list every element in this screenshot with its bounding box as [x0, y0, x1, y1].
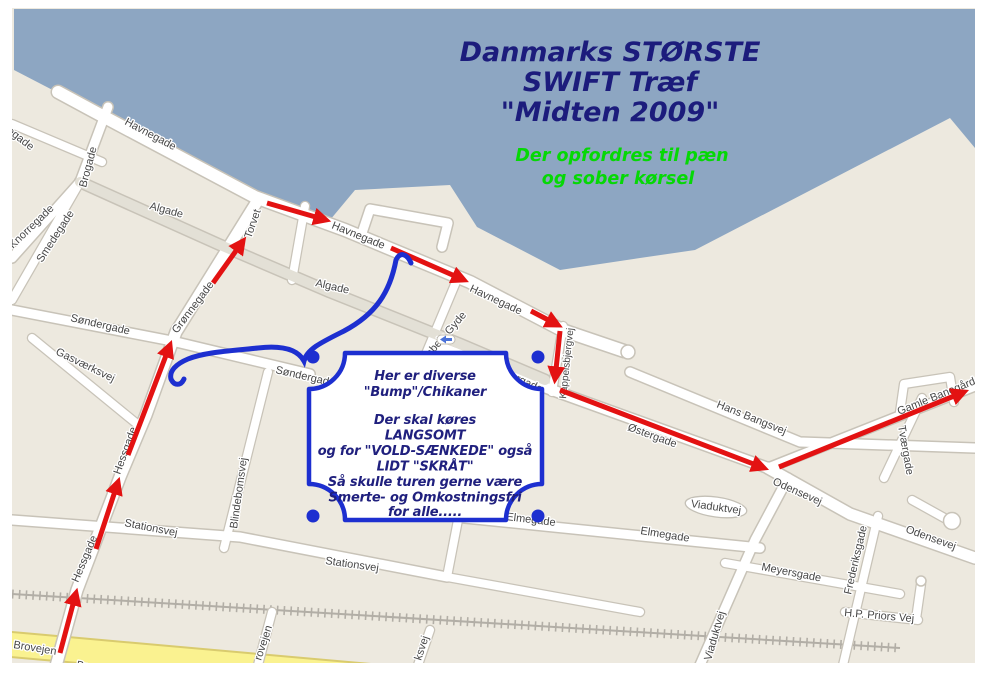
note-box-line-4: LANGSOMT: [385, 429, 467, 444]
note-box-corner-dot: [307, 351, 320, 364]
note-box-corner-dot: [307, 510, 320, 523]
note-box-line-1: Her er diverse: [374, 369, 476, 384]
note-box-line-7: Så skulle turen gerne være: [328, 475, 523, 490]
note-box-line-3: Der skal køres: [374, 413, 477, 428]
culdesac-southeast: [944, 513, 961, 530]
note-box-line-2: "Bump"/Chikaner: [364, 385, 488, 400]
page-title-line-3: "Midten 2009": [501, 97, 720, 128]
note-box: Her er diverse "Bump"/Chikaner Der skal …: [307, 351, 545, 523]
page-title-line-2: SWIFT Træf: [523, 67, 701, 98]
page-subtitle-line-1: Der opfordres til pæn: [515, 146, 728, 166]
map-area: tegade Havnegade Brogade Knorregade Smed…: [2, 8, 995, 681]
note-box-line-8: Smerte- og Omkostningsfri: [328, 491, 522, 506]
culdesac-hp-priors: [916, 576, 926, 586]
note-box-corner-dot: [532, 351, 545, 364]
culdesac-havnegade-end: [621, 345, 635, 359]
note-box-line-5: og for "VOLD-SÆNKEDE" også: [318, 444, 532, 459]
one-way-arrow-icon: [437, 335, 455, 344]
map-canvas: tegade Havnegade Brogade Knorregade Smed…: [0, 0, 1000, 681]
note-box-line-6: LIDT "SKRÅT": [377, 459, 474, 475]
note-box-corner-dot: [532, 510, 545, 523]
page-title-line-1: Danmarks STØRSTE: [460, 37, 761, 68]
route-map-page: tegade Havnegade Brogade Knorregade Smed…: [0, 0, 1000, 681]
note-box-line-9: for alle.....: [388, 505, 462, 520]
page-subtitle-line-2: og sober kørsel: [542, 169, 695, 189]
